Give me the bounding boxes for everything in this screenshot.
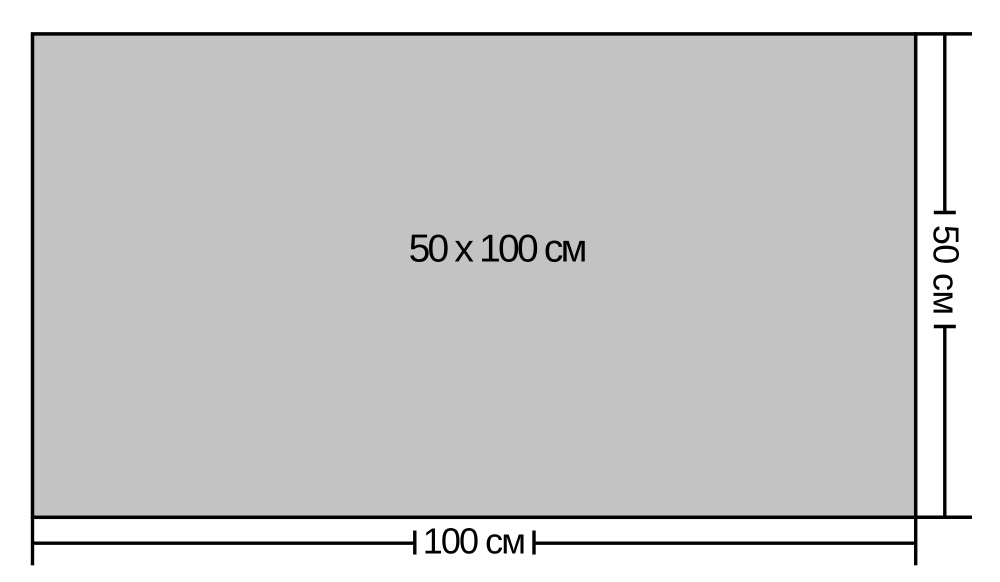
svg-text:100 см: 100 см xyxy=(423,521,526,562)
svg-text:50 x 100 см: 50 x 100 см xyxy=(409,228,588,271)
svg-text:50 см: 50 см xyxy=(926,225,967,315)
